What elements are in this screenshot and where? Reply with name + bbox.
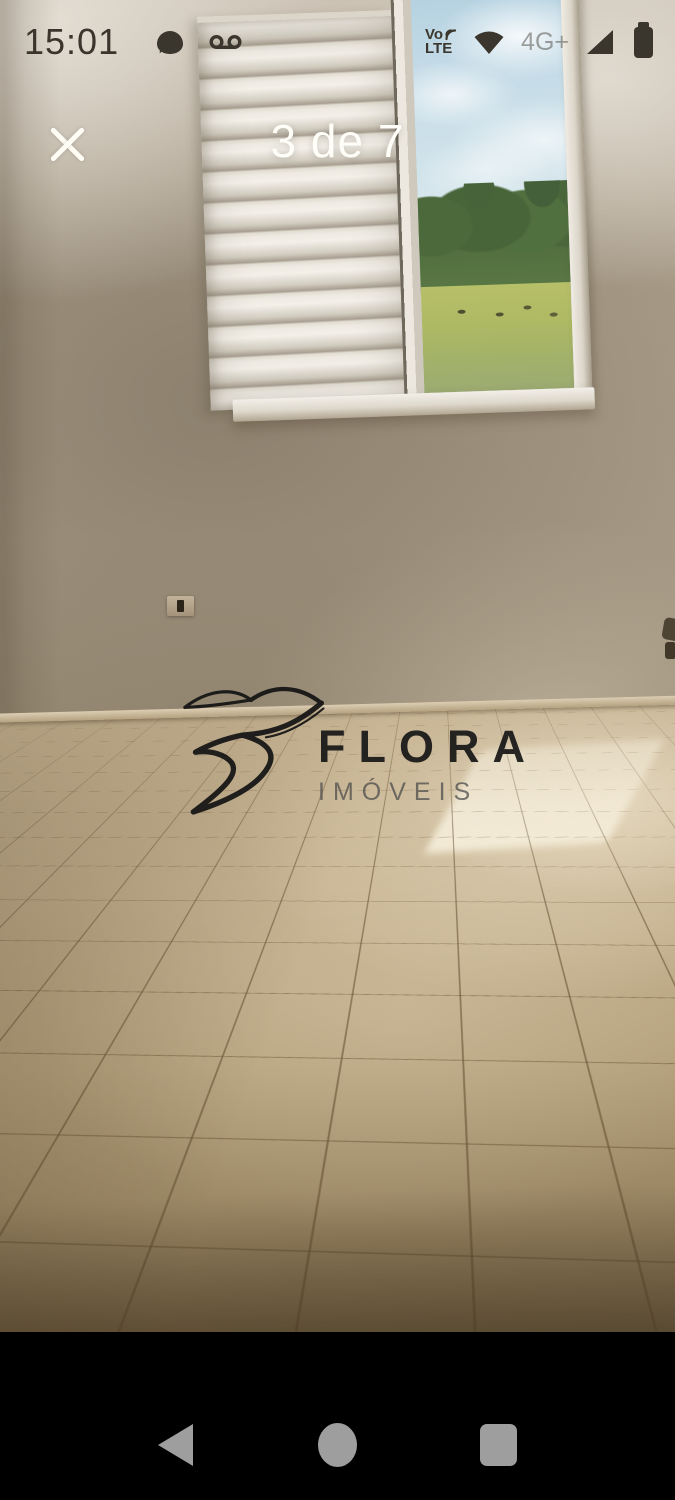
back-icon: [158, 1424, 193, 1466]
power-outlet: [167, 596, 194, 616]
network-type-badge: 4G+: [521, 28, 569, 57]
clock: 15:01: [24, 21, 119, 63]
door-latch: [657, 618, 675, 670]
home-button[interactable]: [287, 1390, 387, 1500]
wifi-icon: [472, 28, 506, 56]
battery-icon: [634, 27, 653, 58]
signal-strength-icon: [584, 27, 616, 57]
status-bar: 15:01 Vo: [0, 0, 675, 84]
home-icon: [318, 1423, 357, 1467]
back-button[interactable]: [125, 1390, 225, 1500]
recents-icon: [480, 1424, 517, 1466]
volte-label-bottom: LTE: [425, 42, 457, 56]
android-navigation-bar: [0, 1332, 675, 1500]
grass-field: [421, 282, 575, 393]
recents-button[interactable]: [448, 1390, 548, 1500]
voicemail-icon: [209, 33, 242, 52]
gallery-header: 3 de 7: [0, 100, 675, 200]
volte-icon: Vo LTE: [425, 28, 457, 56]
chat-bubble-icon: [157, 31, 183, 54]
phone-screen: FLORA IMÓVEIS 15:01 Vo: [0, 0, 675, 1500]
tiled-floor: [0, 695, 675, 1332]
photo-counter: 3 de 7: [0, 114, 675, 168]
